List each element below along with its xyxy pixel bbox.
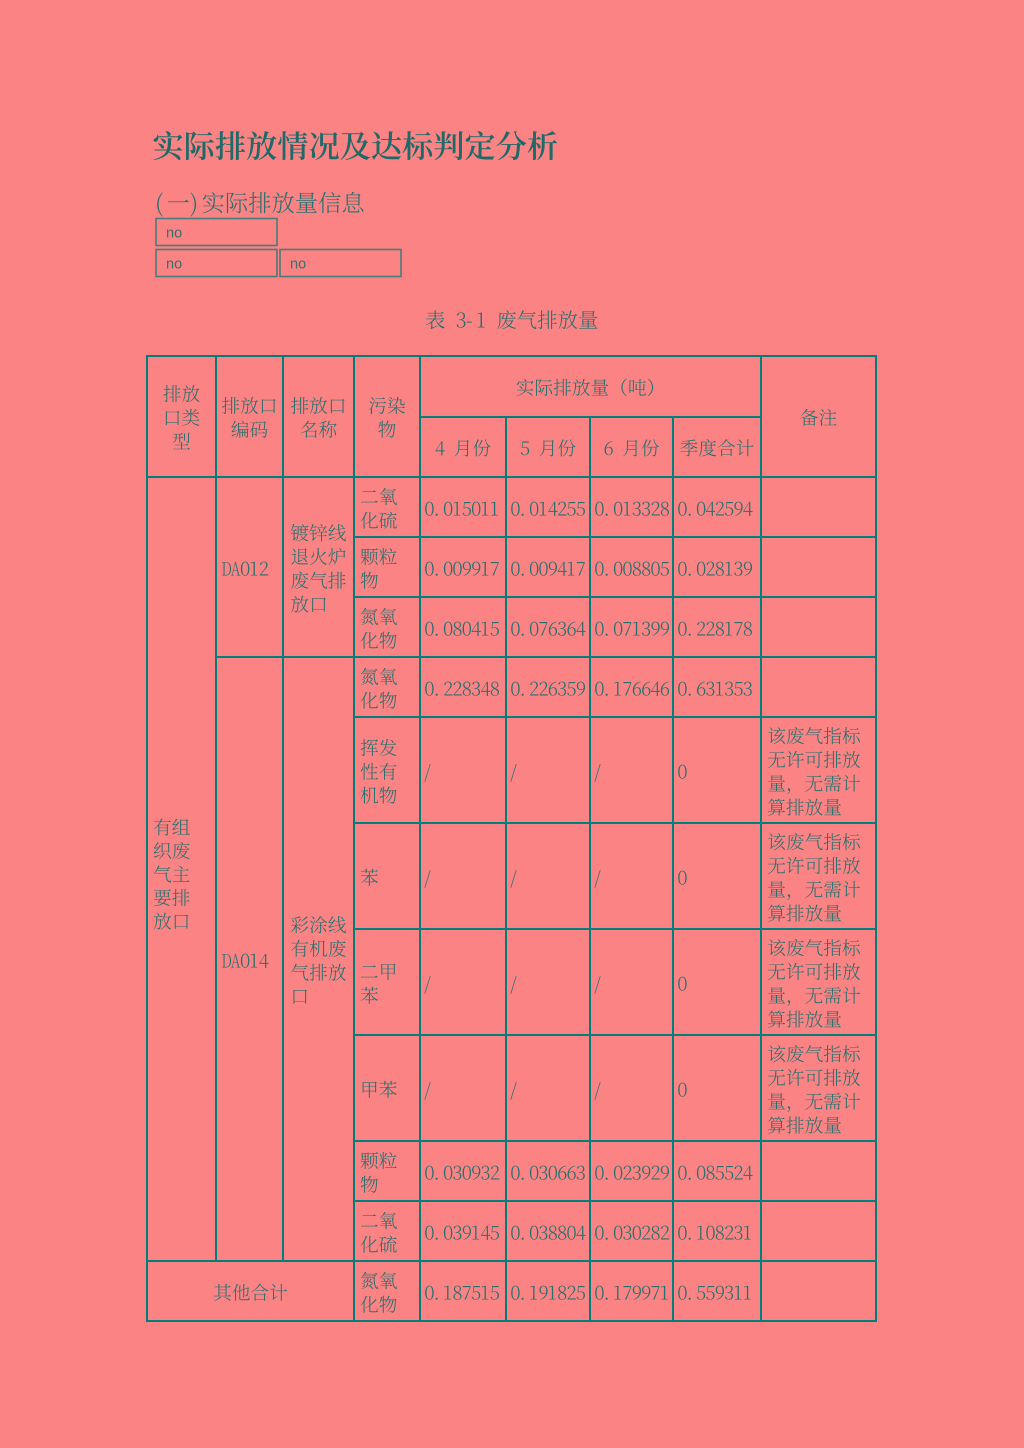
svg-text:no: no [166, 226, 182, 242]
svg-text:no: no [290, 257, 306, 273]
svg-text:no: no [166, 257, 182, 273]
